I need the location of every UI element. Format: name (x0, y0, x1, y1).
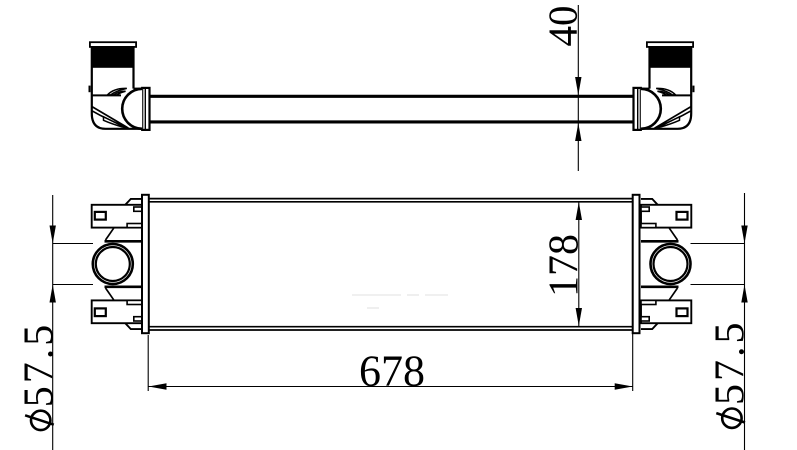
svg-text:57.5: 57.5 (708, 320, 754, 406)
svg-text:40: 40 (540, 6, 586, 47)
svg-text:178: 178 (542, 234, 588, 297)
svg-text:678: 678 (359, 347, 425, 396)
svg-text:57.5: 57.5 (16, 322, 62, 408)
